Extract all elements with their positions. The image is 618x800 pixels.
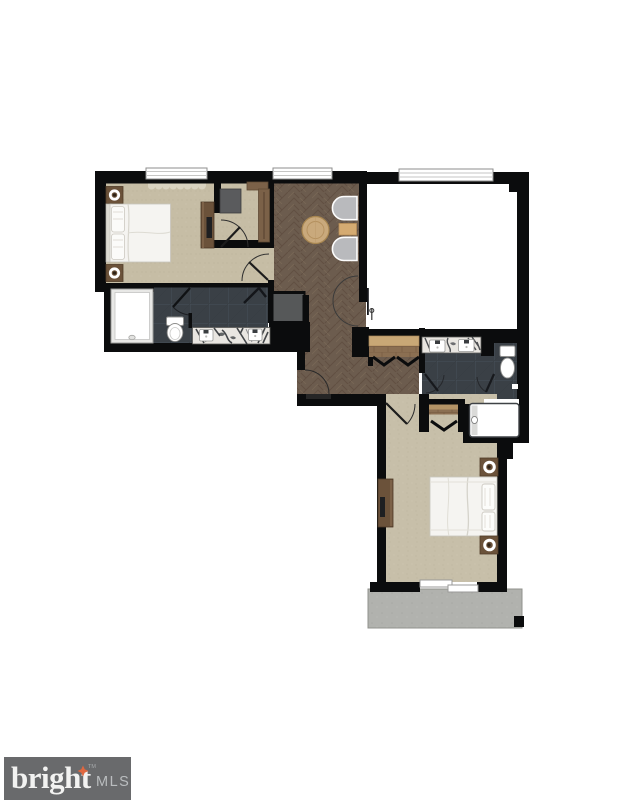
svg-text:TM: TM (88, 764, 96, 770)
svg-text:bright: bright (11, 760, 92, 795)
svg-text:MLS: MLS (96, 774, 130, 790)
